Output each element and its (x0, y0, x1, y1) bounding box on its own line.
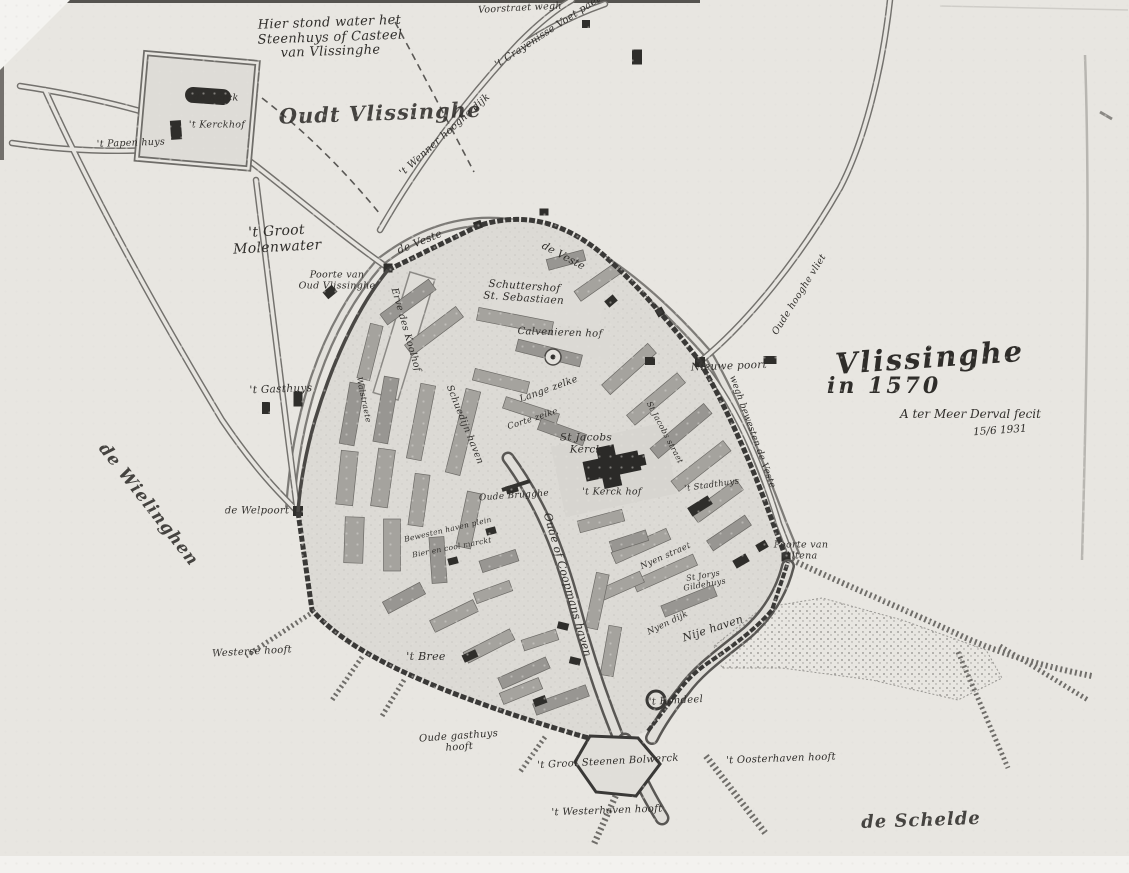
label-gasthuys: 't Gasthuys (249, 383, 312, 397)
label-calvenieren-hof: Calvenieren hof (517, 326, 602, 340)
label-westerse-hooft: Westerse hooft (212, 644, 292, 659)
label-veste-east: de Veste (539, 241, 586, 274)
label-coopmans-haven: Oude of Coopmans haven (541, 512, 594, 659)
label-oude-hooghe-vliet: Oude hooghe vliet (771, 253, 829, 338)
map-photo: Hier stond water het Steenhuys of Castee… (0, 0, 1129, 873)
label-walstraete: Walstraete (354, 376, 372, 423)
label-oude-brugghe: Oude Brugghe (479, 489, 550, 504)
label-corte-zelke: Corte zelke (507, 407, 560, 432)
label-top-edge-road: Voorstraet wegh (478, 2, 562, 17)
label-oudt-vlissinghe: Oudt Vlissinghe (278, 98, 481, 129)
label-stadthuys: 't Stadthuys (684, 477, 740, 494)
label-de-kerck: de Kerck (193, 94, 238, 105)
label-groot-steenen-bolwerck: 't Groot Steenen Bolwerck (537, 753, 679, 772)
label-schuedijn-haven: Schuedijn haven (443, 384, 484, 466)
label-papen-huys: 't Papen huys (97, 137, 166, 150)
label-nieuwe-poort: Nieuwe poort (691, 360, 768, 374)
label-oude-gasthuys-hooft: Oude gasthuys hooft (419, 728, 500, 756)
label-st-jacobs-kerck: St Jacobs Kerck (560, 432, 612, 456)
label-kerckhof-oudt: 't Kerckhof (189, 121, 245, 132)
label-nije-haven: Nije haven (681, 613, 745, 644)
label-schuttershof: Schuttershof St. Sebastiaen (483, 278, 565, 307)
label-st-jorys-gildehuys: St Jorys Gildehuys (681, 568, 726, 593)
label-kerck-hof: 't Kerck hof (582, 488, 642, 499)
label-st-jacobs-straet: St Jacobs straet (644, 400, 684, 465)
label-steenhuys-note: Hier stond water het Steenhuys of Castee… (257, 14, 403, 63)
label-groot-molenwater: 't Groot Molenwater (232, 222, 322, 258)
label-nyen-straet: Nyen straet (639, 542, 692, 573)
label-bier-coolmarkt: Bier en cool marckt (412, 536, 493, 560)
label-poorte-van-altena: Poorte van Altena (774, 540, 829, 561)
label-weg-bewesten-veste: wegh bewesten de Veste (727, 374, 777, 489)
label-nyen-dijk: Nyen dijk (646, 610, 690, 638)
label-welpoort: de Welpoort (225, 505, 290, 516)
label-wielinghen: de Wielinghen (94, 440, 202, 570)
label-lange-zelke: Lange zelke (518, 375, 579, 406)
label-top-road-right: 't Crayenisse Voet paet (493, 0, 603, 70)
label-layer: Hier stond water het Steenhuys of Castee… (0, 0, 1129, 873)
label-westerhaven-hooft: 't Westerhaven hooft (551, 803, 662, 818)
label-veste-west: de Veste (396, 229, 444, 258)
label-bree: 't Bree (406, 651, 445, 663)
label-erve-koolhof: Erve des Koolhof (388, 287, 422, 373)
label-top-road-left: 't Wenner hooghe dijk (398, 92, 493, 179)
map-title-block: Vlissinghe in 1570 A ter Meer Derval fec… (795, 338, 1095, 434)
label-oosterhaven-hooft: 't Oosterhaven hooft (726, 751, 836, 766)
label-rondeel: 't Rondeel (649, 694, 704, 708)
label-de-schelde: de Schelde (861, 809, 981, 833)
label-bewesten-haven-plein: Bewesten haven plein (404, 516, 493, 544)
label-poorte-oud-vlissinghe: Poorte van Oud Vlissinghe (299, 270, 376, 291)
